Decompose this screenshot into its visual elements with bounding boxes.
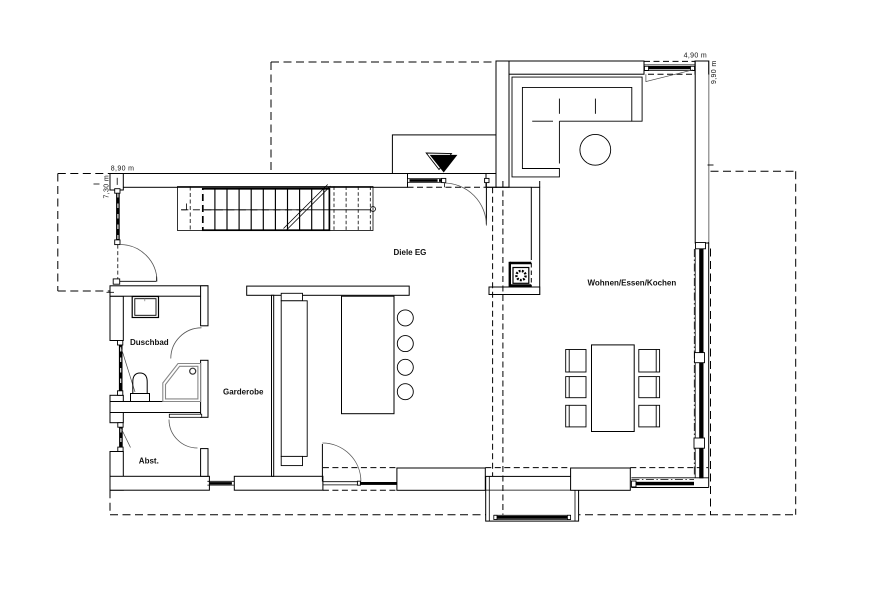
svg-text:Abst.: Abst. — [139, 456, 159, 465]
svg-text:8,90 m: 8,90 m — [111, 165, 135, 172]
svg-text:Duschbad: Duschbad — [130, 338, 169, 347]
svg-text:7,30 m: 7,30 m — [104, 175, 111, 199]
svg-text:Wohnen/Essen/Kochen: Wohnen/Essen/Kochen — [588, 279, 677, 288]
svg-text:Diele EG: Diele EG — [394, 248, 427, 257]
svg-text:9,90 m: 9,90 m — [711, 61, 718, 85]
svg-text:4,90 m: 4,90 m — [684, 53, 708, 60]
svg-text:Garderobe: Garderobe — [223, 387, 264, 396]
